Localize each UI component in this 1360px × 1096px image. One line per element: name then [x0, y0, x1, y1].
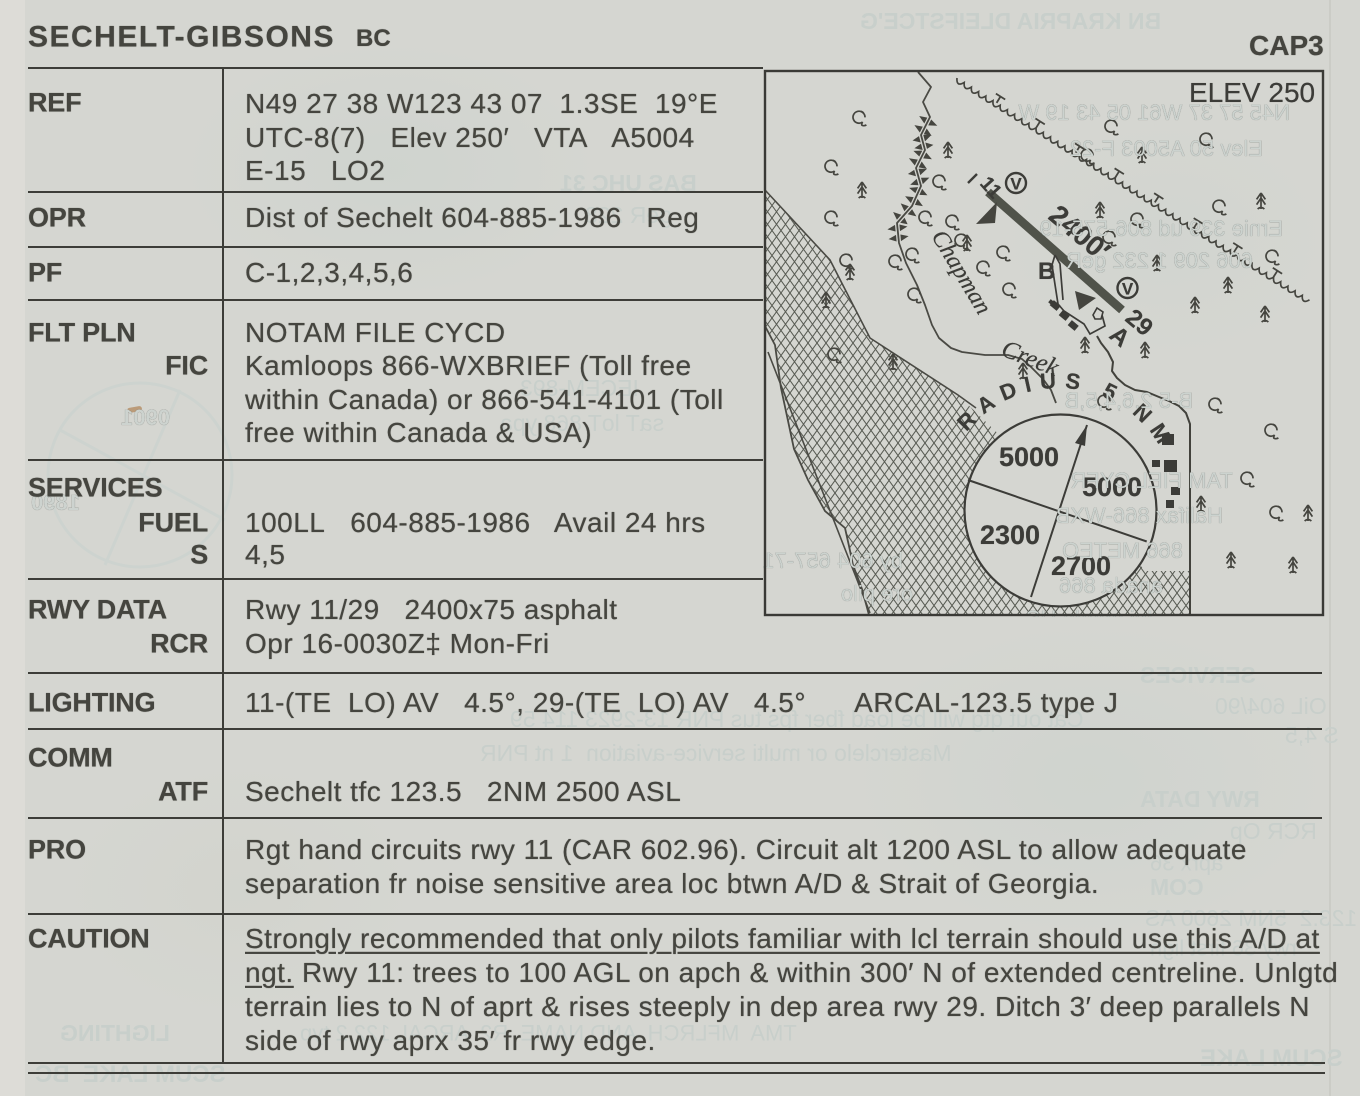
svg-text:Halifax 866-WXB: Halifax 866-WXB [1055, 503, 1223, 528]
svg-text:5000: 5000 [999, 442, 1059, 472]
svg-text:866 METEO: 866 METEO [1062, 538, 1183, 563]
svg-text:606 209 1 232 geR: 606 209 1 232 geR [1066, 248, 1253, 273]
svg-text:V: V [1122, 280, 1134, 299]
svg-text:by 604 657-71: by 604 657-71 [763, 548, 903, 573]
svg-text:B-5 2.6,4,5,B: B-5 2.6,4,5,B [1065, 388, 1193, 413]
svg-text:anada 866: anada 866 [1059, 573, 1163, 598]
svg-text:B: B [1038, 258, 1055, 285]
svg-text:TAM FIEL CYFR: TAM FIEL CYFR [1070, 468, 1233, 493]
svg-text:0901: 0901 [121, 405, 170, 430]
svg-text:Elev 50 A5003 F-22: Elev 50 A5003 F-22 [1070, 136, 1263, 161]
svg-text:N45 57 37 W61 05 43 19 W: N45 57 37 W61 05 43 19 W [1018, 100, 1290, 125]
svg-text:ore pilo: ore pilo [841, 581, 913, 606]
svg-text:2300: 2300 [980, 520, 1040, 550]
svg-text:V: V [1010, 175, 1022, 194]
svg-text:Ernie 339 ud 806-575-19: Ernie 339 ud 806-575-19 [1040, 216, 1283, 241]
